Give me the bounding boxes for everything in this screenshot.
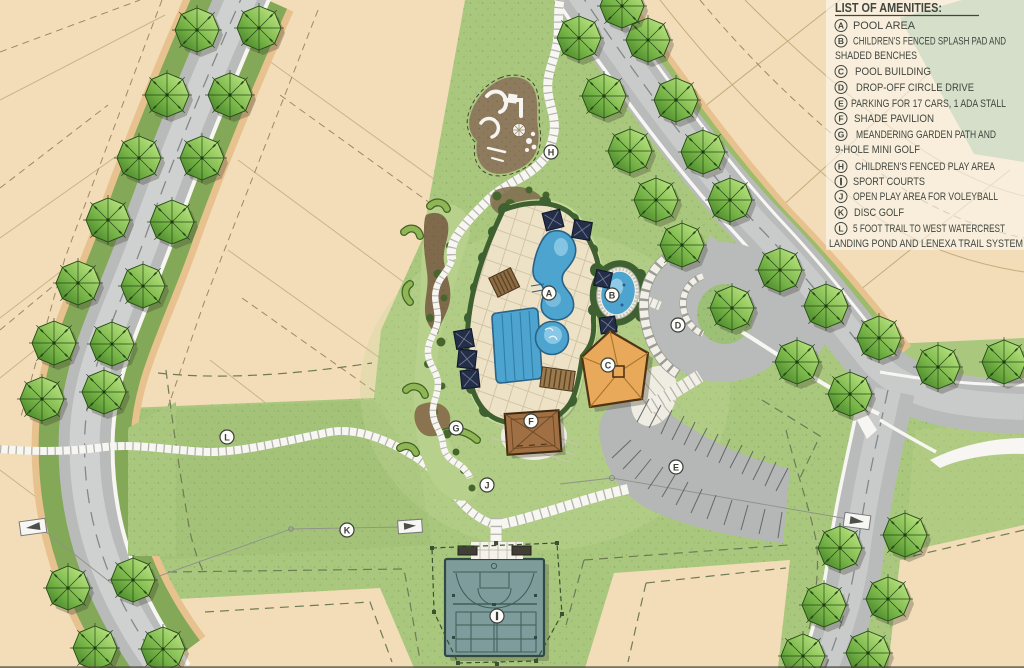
svg-text:J: J (484, 481, 489, 491)
svg-text:C: C (605, 361, 612, 371)
svg-text:D: D (675, 321, 682, 331)
svg-text:A: A (838, 21, 844, 31)
svg-text:D: D (838, 83, 844, 93)
svg-text:E: E (838, 99, 844, 109)
svg-text:POOL AREA: POOL AREA (853, 20, 916, 32)
svg-text:SPORT COURTS: SPORT COURTS (853, 176, 925, 188)
svg-text:A: A (546, 289, 553, 299)
svg-text:LANDING POND AND LENEXA TRAIL: LANDING POND AND LENEXA TRAIL SYSTEM (829, 238, 1023, 250)
svg-text:C: C (838, 67, 844, 77)
svg-text:G: G (452, 424, 459, 434)
svg-text:K: K (838, 208, 845, 218)
svg-text:F: F (528, 417, 534, 427)
svg-text:PARKING FOR 17 CARS, 1 ADA STA: PARKING FOR 17 CARS, 1 ADA STALL (851, 98, 1006, 110)
svg-text:CHILDREN'S FENCED PLAY AREA: CHILDREN'S FENCED PLAY AREA (855, 161, 996, 173)
svg-text:5 FOOT TRAIL TO WEST WATERCRES: 5 FOOT TRAIL TO WEST WATERCREST (853, 223, 1005, 235)
svg-text:F: F (838, 114, 843, 124)
svg-text:K: K (344, 526, 351, 536)
svg-text:SHADE PAVILION: SHADE PAVILION (854, 113, 934, 125)
svg-text:9-HOLE MINI GOLF: 9-HOLE MINI GOLF (835, 144, 920, 156)
svg-text:L: L (224, 433, 230, 443)
svg-text:DROP-OFF CIRCLE DRIVE: DROP-OFF CIRCLE DRIVE (856, 82, 974, 94)
svg-text:CHILDREN'S FENCED SPLASH PAD A: CHILDREN'S FENCED SPLASH PAD AND (853, 36, 1006, 48)
svg-text:J: J (839, 192, 844, 202)
svg-text:DISC GOLF: DISC GOLF (854, 207, 904, 219)
svg-text:POOL BUILDING: POOL BUILDING (855, 66, 931, 78)
svg-text:OPEN PLAY AREA FOR VOLEYBALL: OPEN PLAY AREA FOR VOLEYBALL (853, 191, 998, 203)
svg-text:B: B (838, 36, 844, 46)
svg-text:G: G (838, 130, 845, 140)
svg-text:E: E (673, 463, 679, 473)
svg-text:LIST OF AMENITIES:: LIST OF AMENITIES: (835, 0, 942, 15)
svg-text:MEANDERING GARDEN PATH AND: MEANDERING GARDEN PATH AND (856, 129, 996, 141)
svg-text:SHADED BENCHES: SHADED BENCHES (835, 50, 917, 62)
svg-text:H: H (548, 148, 555, 158)
svg-text:L: L (838, 224, 843, 234)
svg-text:H: H (838, 162, 844, 172)
svg-text:B: B (609, 291, 616, 301)
